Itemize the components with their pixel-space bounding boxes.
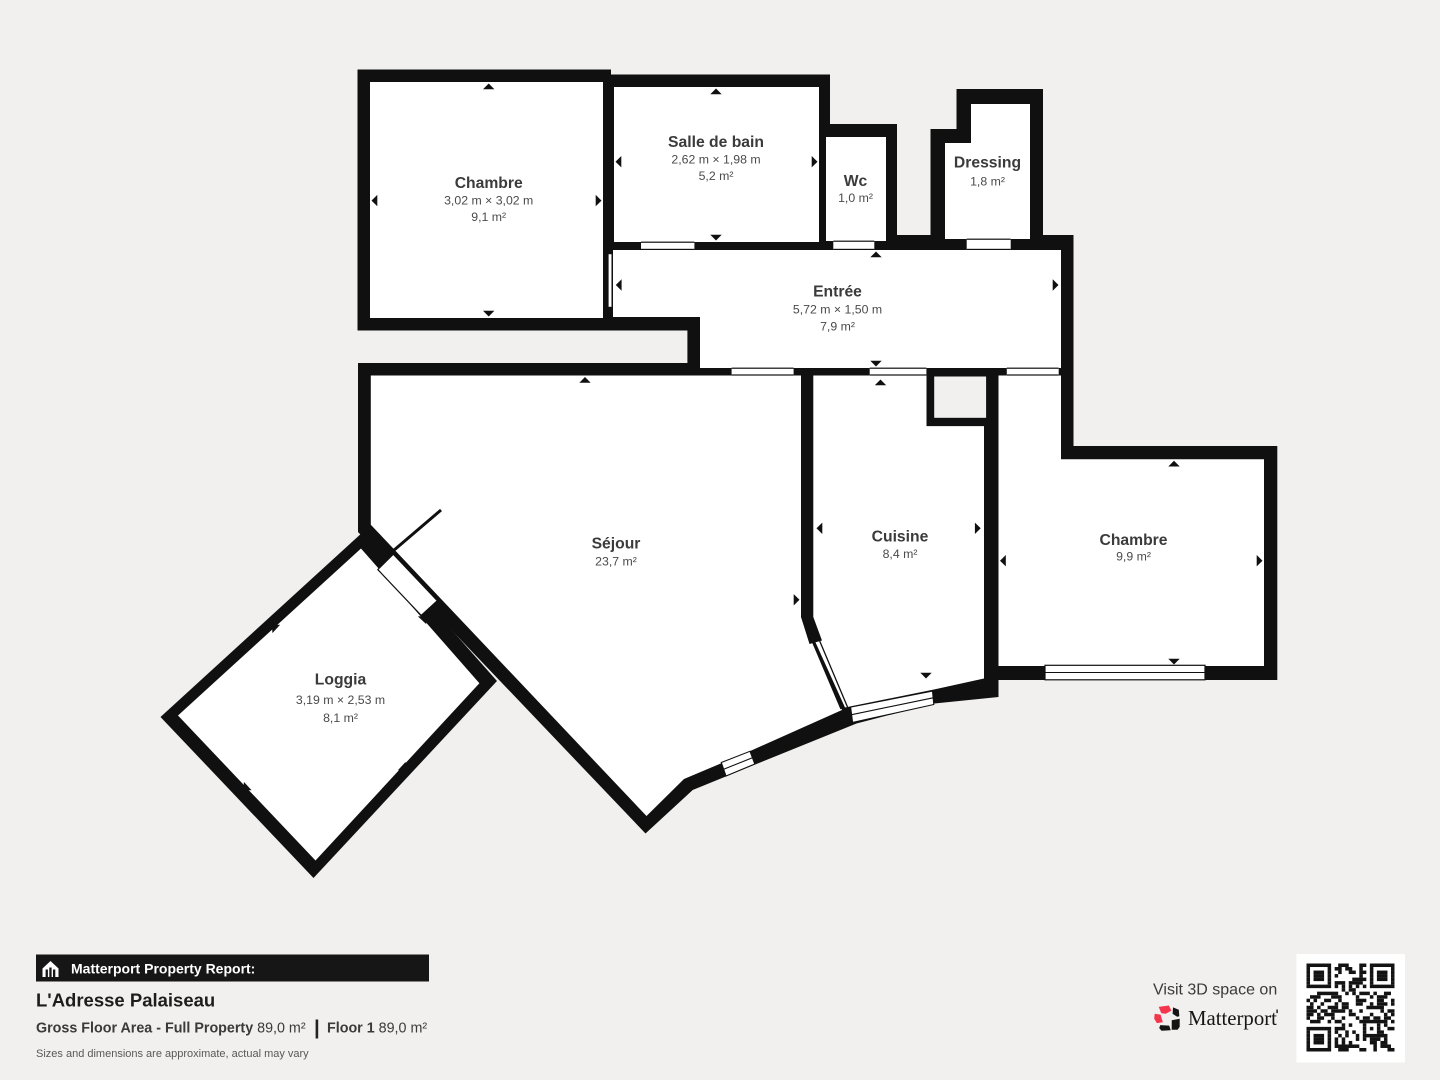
svg-text:Visit 3D space on: Visit 3D space on (1153, 982, 1277, 999)
svg-text:Entrée: Entrée (813, 284, 862, 301)
svg-text:5,72 m × 1,50 m: 5,72 m × 1,50 m (793, 303, 882, 317)
svg-text:7,9 m²: 7,9 m² (820, 320, 855, 334)
svg-text:Gross Floor Area - Full Proper: Gross Floor Area - Full Property 89,0 m² (36, 1020, 306, 1036)
svg-text:L'Adresse Palaiseau: L'Adresse Palaiseau (36, 990, 215, 1011)
svg-text:Cuisine: Cuisine (872, 529, 929, 546)
svg-text:Séjour: Séjour (592, 535, 641, 552)
svg-text:Floor 1 89,0 m²: Floor 1 89,0 m² (327, 1020, 427, 1036)
svg-text:1,8 m²: 1,8 m² (970, 175, 1005, 189)
svg-text:3,19 m × 2,53 m: 3,19 m × 2,53 m (296, 693, 385, 707)
svg-text:Wc: Wc (844, 173, 868, 190)
svg-text:2,62 m × 1,98 m: 2,62 m × 1,98 m (671, 153, 760, 167)
svg-text:Chambre: Chambre (455, 175, 523, 192)
svg-text:23,7 m²: 23,7 m² (595, 555, 637, 569)
svg-text:Salle de bain: Salle de bain (668, 134, 764, 151)
svg-text:Matterport: Matterport (1188, 1007, 1277, 1030)
svg-text:Chambre: Chambre (1100, 532, 1168, 549)
svg-text:9,1 m²: 9,1 m² (471, 210, 506, 224)
svg-text:Matterport Property Report:: Matterport Property Report: (71, 960, 255, 976)
svg-text:8,1 m²: 8,1 m² (323, 711, 358, 725)
svg-text:8,4 m²: 8,4 m² (883, 547, 918, 561)
svg-text:9,9 m²: 9,9 m² (1116, 550, 1151, 564)
svg-text:5,2 m²: 5,2 m² (699, 169, 734, 183)
svg-text:3,02 m × 3,02 m: 3,02 m × 3,02 m (444, 194, 533, 208)
svg-text:1,0 m²: 1,0 m² (838, 191, 873, 205)
svg-text:Sizes and dimensions are appro: Sizes and dimensions are approximate, ac… (36, 1048, 309, 1060)
svg-text:Dressing: Dressing (954, 155, 1021, 172)
svg-text:Loggia: Loggia (315, 672, 367, 689)
